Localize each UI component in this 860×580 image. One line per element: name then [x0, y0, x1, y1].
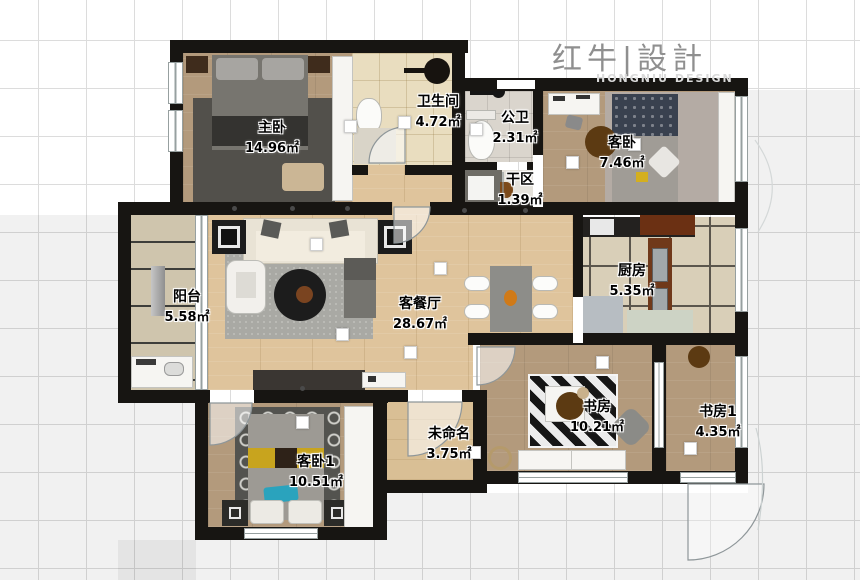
- margin-shade-left: [0, 215, 118, 580]
- opening-kitchen-door: [573, 297, 583, 343]
- window-kitchen: [735, 228, 748, 312]
- wall-top-left-block: [170, 40, 468, 53]
- wall-study-top: [468, 333, 748, 345]
- room-area: 28.67㎡: [360, 315, 480, 335]
- room-name: 客卧1: [297, 454, 335, 470]
- entry-console-item: [368, 376, 376, 382]
- wall-publicwc-bottom-a: [455, 162, 497, 170]
- guest1-nightstand-left: [222, 500, 248, 526]
- guest-bed-yellow-item: [636, 172, 648, 182]
- room-label-study1: 书房1 4.35㎡: [658, 402, 778, 443]
- room-label-balcony: 阳台 5.58㎡: [127, 287, 247, 328]
- washing-machine-door: [164, 362, 184, 376]
- wall-dot-3: [345, 206, 350, 211]
- sofa-pillow-left: [261, 219, 282, 238]
- study-sofa: [518, 450, 626, 470]
- room-area: 5.58㎡: [127, 308, 247, 328]
- window-guest-bedroom: [735, 96, 748, 182]
- wall-bath-bottom-a: [352, 165, 368, 175]
- room-name: 阳台: [173, 289, 201, 305]
- floorplan-canvas: 主卧 14.96㎡ 卫生间 4.72㎡ 公卫 2.31㎡ 客卧 7.46㎡ 干区…: [0, 0, 860, 580]
- master-pillow-left: [216, 58, 258, 80]
- window-study1-bottom: [680, 472, 736, 483]
- window-master-1: [168, 62, 183, 104]
- window-master-2: [168, 110, 183, 152]
- room-name: 主卧: [258, 120, 286, 136]
- study1-plant: [688, 346, 710, 368]
- wall-mid-a: [118, 202, 392, 215]
- room-area: 1.39㎡: [460, 191, 580, 211]
- room-label-living-dining: 客餐厅 28.67㎡: [360, 294, 480, 335]
- side-table-left: [212, 220, 246, 254]
- room-label-kitchen: 厨房 5.35㎡: [572, 261, 692, 302]
- kitchen-upper-cabinet: [640, 215, 695, 235]
- master-nightstand-right: [308, 56, 330, 73]
- study-sofa-seam: [571, 450, 572, 470]
- side-table-right: [378, 220, 412, 254]
- dining-chair-1: [464, 276, 490, 291]
- guest-bed-blanket: [612, 94, 678, 136]
- fixture-square-living-d: [404, 346, 417, 359]
- guest-desk-item: [553, 96, 565, 101]
- hallway-opening-floor: [392, 202, 430, 215]
- margin-shade-right: [748, 90, 860, 580]
- master-bench-cushion: [282, 163, 324, 191]
- guest1-pillow-left: [250, 500, 284, 524]
- room-area: 2.31㎡: [455, 129, 575, 149]
- window-guest1-bottom: [244, 528, 318, 539]
- opening-publicwc-top: [497, 80, 535, 89]
- brand-watermark: HONGNIU DESIGN: [596, 72, 734, 85]
- washing-machine-panel: [136, 359, 156, 365]
- coffee-table-tray: [296, 286, 313, 303]
- master-pillow-right: [262, 58, 304, 80]
- dining-chair-3: [532, 276, 558, 291]
- kitchen-fridge: [583, 296, 623, 334]
- kitchen-stove: [590, 219, 614, 235]
- room-label-study: 书房 10.21㎡: [537, 397, 657, 438]
- bathroom-shower-area: [354, 128, 396, 164]
- wall-dot-2: [290, 206, 295, 211]
- room-label-unnamed: 未命名 3.75㎡: [389, 424, 509, 465]
- tv-cabinet: [253, 370, 365, 390]
- wall-unnamed-top-a: [387, 390, 408, 402]
- room-area: 10.51㎡: [256, 473, 376, 493]
- guest-desk-item-2: [576, 95, 590, 99]
- fixture-square-study1: [684, 442, 697, 455]
- fixture-square-living-a: [310, 238, 323, 251]
- room-name: 公卫: [501, 110, 529, 126]
- fixture-square-living-b: [434, 262, 447, 275]
- wall-guest1-left: [195, 390, 208, 540]
- room-name: 书房1: [699, 404, 737, 420]
- room-area: 5.35㎡: [572, 282, 692, 302]
- room-area: 14.96㎡: [212, 139, 332, 159]
- room-area: 7.46㎡: [562, 154, 682, 174]
- chaise-pillow: [344, 258, 376, 280]
- wall-dot-1: [232, 206, 237, 211]
- wall-guest1-top-b: [254, 390, 388, 403]
- room-name: 干区: [506, 172, 534, 188]
- room-label-dry-area: 干区 1.39㎡: [460, 170, 580, 211]
- fixture-square-study: [596, 356, 609, 369]
- room-name: 客餐厅: [399, 296, 441, 312]
- master-nightstand-left: [186, 56, 208, 73]
- fixture-square-master: [344, 120, 357, 133]
- dining-centerpiece: [504, 290, 517, 306]
- room-name: 客卧: [608, 135, 636, 151]
- bathroom-sink-faucet: [404, 68, 426, 73]
- margin-shade-below-study: [387, 493, 748, 540]
- room-name: 卫生间: [417, 94, 459, 110]
- room-name: 书房: [583, 399, 611, 415]
- guest1-pillow-right: [288, 500, 322, 524]
- margin-shade-bottom: [118, 540, 748, 580]
- room-label-guest-bedroom: 客卧 7.46㎡: [562, 133, 682, 174]
- room-name: 未命名: [428, 426, 470, 442]
- room-label-public-wc: 公卫 2.31㎡: [455, 108, 575, 149]
- room-area: 4.35㎡: [658, 423, 778, 443]
- bathroom-sink-bowl: [424, 58, 450, 84]
- wall-dot-6: [300, 386, 305, 391]
- room-label-master: 主卧 14.96㎡: [212, 118, 332, 159]
- fixture-square-living-c: [336, 328, 349, 341]
- wall-unnamed-bottom: [373, 480, 487, 493]
- fixture-square-guest1: [296, 416, 309, 429]
- room-area: 3.75㎡: [389, 445, 509, 465]
- sofa-pillow-right: [329, 220, 350, 239]
- room-area: 10.21㎡: [537, 418, 657, 438]
- window-study-bottom: [518, 472, 628, 483]
- room-label-guest-bedroom1: 客卧1 10.51㎡: [256, 452, 376, 493]
- guest-wardrobe: [718, 92, 735, 203]
- room-name: 厨房: [618, 263, 646, 279]
- dining-chair-4: [532, 304, 558, 319]
